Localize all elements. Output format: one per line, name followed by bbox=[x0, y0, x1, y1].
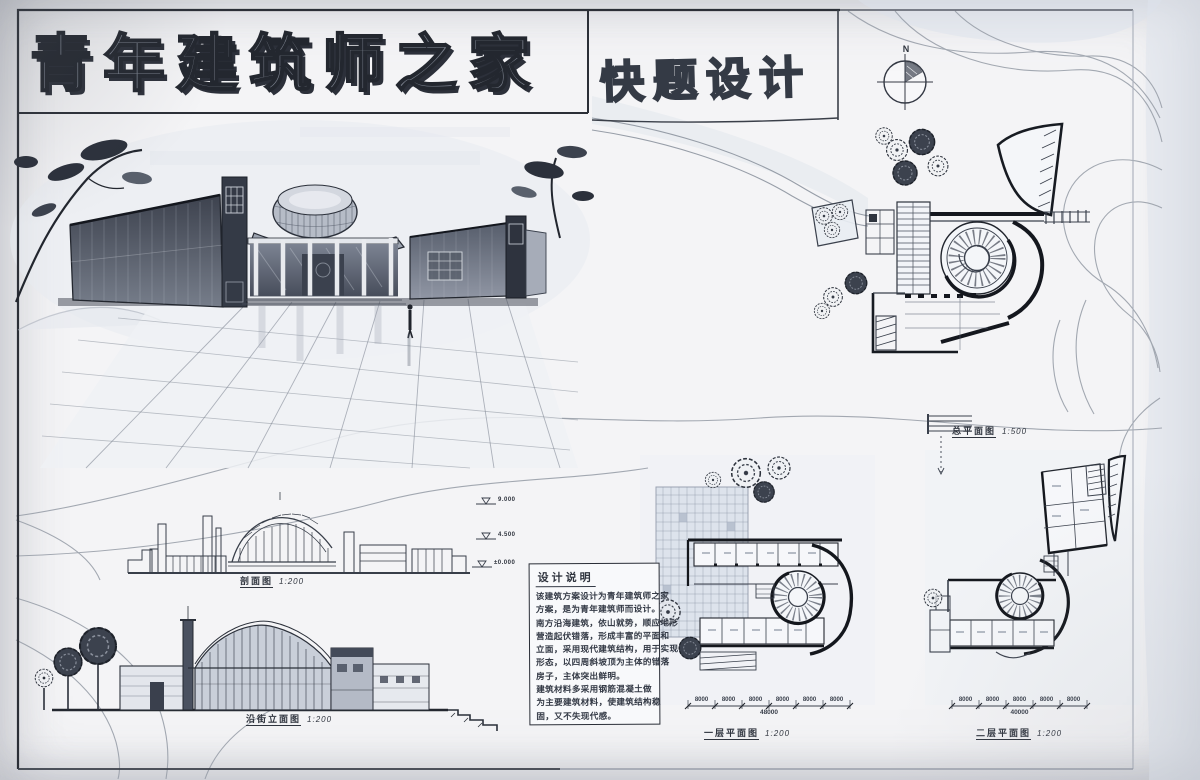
plan1-dim-segment: 8000 bbox=[796, 697, 823, 703]
page-subtitle: 快题设计 bbox=[599, 41, 813, 111]
note-line: 方案，是为青年建筑师而设计。 bbox=[536, 603, 653, 617]
presentation-board: 青年建筑师之家 快题设计 N 总平面图1:500 剖面图1:200 沿街立面图1… bbox=[0, 0, 1200, 780]
plan1-dim-segment: 8000 bbox=[688, 697, 715, 703]
north-arrow-icon bbox=[877, 54, 933, 110]
note-line: 形态，以四周斜坡顶为主体的错落 bbox=[536, 656, 653, 670]
floor-plan-2-label: 二层平面图1:200 bbox=[976, 726, 1062, 739]
site-plan-label: 总平面图1:500 bbox=[952, 424, 1027, 437]
north-label: N bbox=[898, 44, 914, 54]
plan2-dim-segment: 8000 bbox=[1033, 697, 1060, 703]
note-line: 房子，主体突出鲜明。 bbox=[536, 669, 653, 683]
design-notes-box: 设计说明 该建筑方案设计为青年建筑师之家 方案，是为青年建筑师而设计。 南方沿海… bbox=[529, 563, 661, 726]
note-line: 为主要建筑材料，使建筑结构稳 bbox=[536, 696, 653, 710]
site-plan-drawing bbox=[812, 124, 1090, 474]
level-mark-roof: 9.000 bbox=[498, 497, 516, 503]
note-line: 该建筑方案设计为青年建筑师之家 bbox=[536, 590, 653, 604]
street-elevation-label: 沿街立面图1:200 bbox=[246, 712, 332, 725]
section-label: 剖面图1:200 bbox=[240, 574, 304, 587]
note-line: 立面，采用现代建筑结构，用于实现 bbox=[536, 643, 653, 657]
plan2-dim-segment: 8000 bbox=[952, 697, 979, 703]
notes-title: 设计说明 bbox=[536, 569, 596, 587]
plan2-dim-segment: 8000 bbox=[979, 697, 1006, 703]
floor-plan-1-label: 一层平面图1:200 bbox=[704, 726, 790, 739]
level-mark-ground: ±0.000 bbox=[494, 560, 515, 566]
plan2-dim-segment: 8000 bbox=[1006, 697, 1033, 703]
plan1-dim-segment: 8000 bbox=[769, 697, 796, 703]
note-line: 建筑材料多采用钢筋混凝土做 bbox=[536, 683, 653, 697]
note-line: 固，又不失现代感。 bbox=[536, 709, 653, 723]
plan1-dim-segment: 8000 bbox=[715, 697, 742, 703]
page-title: 青年建筑师之家 bbox=[30, 18, 582, 112]
plan1-dim-segment: 8000 bbox=[823, 697, 850, 703]
plan1-dim-total: 48000 bbox=[688, 709, 850, 716]
note-line: 南方沿海建筑，依山就势，顺应地形 bbox=[536, 616, 653, 630]
plan2-dim-segment: 8000 bbox=[1060, 697, 1087, 703]
plan2-dim-total: 40000 bbox=[952, 709, 1087, 716]
level-mark-floor2: 4.500 bbox=[498, 532, 516, 538]
section-drawing bbox=[128, 492, 496, 573]
plan1-dim-segment: 8000 bbox=[742, 697, 769, 703]
note-line: 营造起伏错落，形成丰富的平面和 bbox=[536, 630, 653, 644]
